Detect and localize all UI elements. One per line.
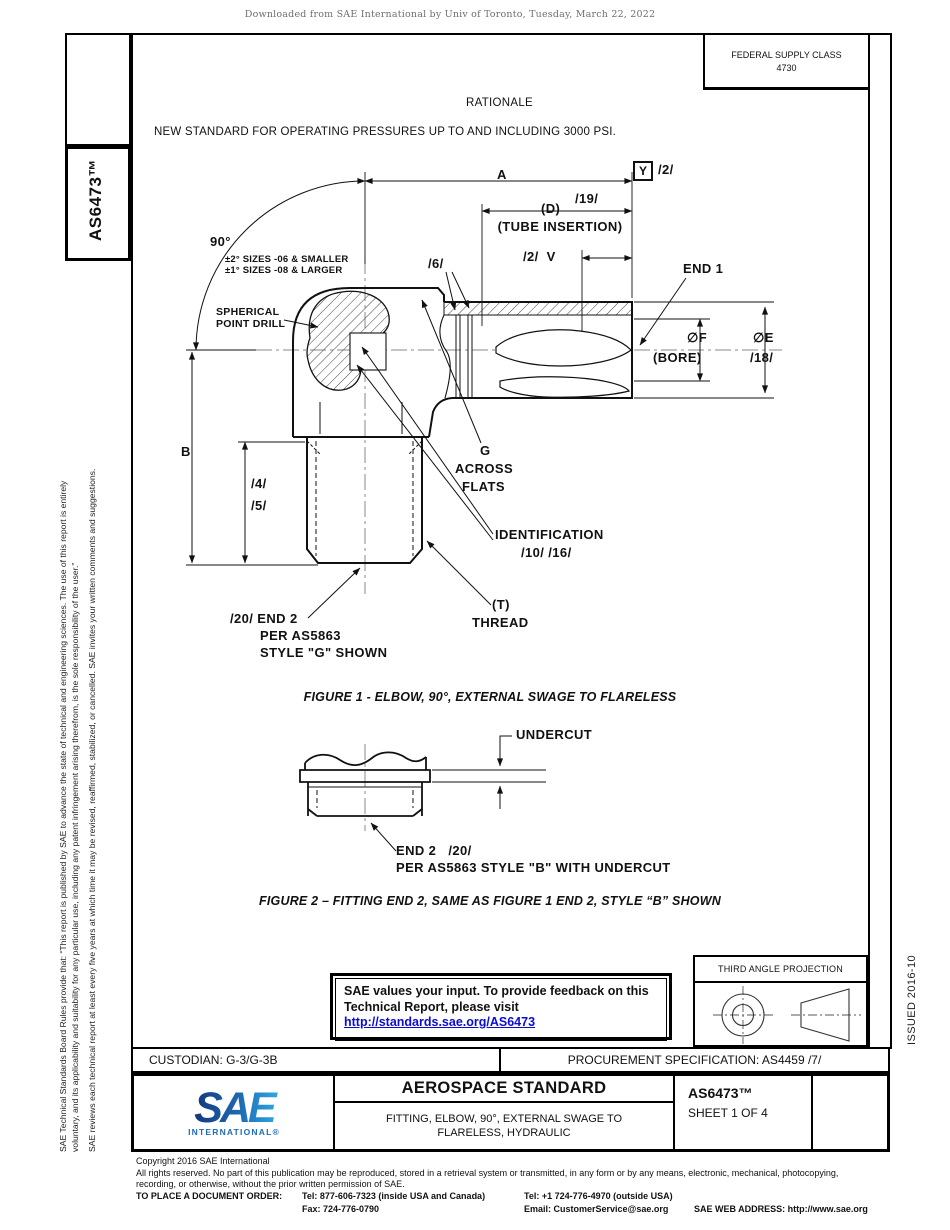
figure2-caption: FIGURE 2 – FITTING END 2, SAME AS FIGURE… [100,894,880,908]
fsc-label: FEDERAL SUPPLY CLASS [705,49,868,62]
undercut-label: UNDERCUT [516,727,592,742]
feedback-line-1: SAE values your input. To provide feedba… [344,984,649,998]
fsc-value: 4730 [705,62,868,75]
note-4-label: /4/ [251,476,267,491]
sae-logo-cell: SAE INTERNATIONAL® [134,1076,335,1149]
legal-line-1: SAE Technical Standards Board Rules prov… [58,481,68,1152]
note-6-label: /6/ [428,256,444,271]
standard-title-line-1: FITTING, ELBOW, 90°, EXTERNAL SWAGE TO [386,1112,622,1126]
note-18-label: /18/ [750,350,773,365]
order-label: TO PLACE A DOCUMENT ORDER: [136,1191,282,1202]
revision-cell-empty [813,1076,887,1149]
bore-label: (BORE) [653,350,702,365]
sae-web-address: SAE WEB ADDRESS: http://www.sae.org [694,1204,868,1215]
standard-title-line-2: FLARELESS, HYDRAULIC [437,1126,570,1140]
angle-tol2-label: ±1° SIZES -08 & LARGER [225,265,342,276]
end2-note-label-3: STYLE "G" SHOWN [260,645,387,660]
sae-logo-text: SAE [194,1085,278,1132]
dim-b-label: B [181,444,191,459]
feedback-line-2: Technical Report, please visit [344,1000,519,1014]
g-label: G [480,443,491,458]
end2-note-label-1: /20/ END 2 [230,611,298,626]
across-label: ACROSS [455,461,513,476]
third-angle-projection-box: THIRD ANGLE PROJECTION [693,955,868,1047]
order-tel-international: Tel: +1 724-776-4970 (outside USA) [524,1191,673,1202]
legal-line-3: SAE reviews each technical report at lea… [87,272,99,1152]
dim-v-label: /2/ V [523,249,556,264]
tube-insertion-label: (TUBE INSERTION) [440,219,680,234]
copyright-line-1: Copyright 2016 SAE International [136,1156,270,1167]
issued-date-vertical: ISSUED 2016-10 [906,880,918,1045]
third-angle-projection-title: THIRD ANGLE PROJECTION [695,957,866,983]
sae-logo: SAE INTERNATIONAL® [168,1085,300,1141]
download-watermark: Downloaded from SAE International by Uni… [0,9,900,20]
spherical-label-1: SPHERICAL [216,306,279,318]
copyright-line-3: recording, or otherwise, without the pri… [136,1179,405,1190]
sae-logo-subtext: INTERNATIONAL® [188,1127,280,1137]
order-tel-domestic: Tel: 877-606-7323 (inside USA and Canada… [302,1191,485,1202]
custodian-row: CUSTODIAN: G-3/G-3B PROCUREMENT SPECIFIC… [131,1047,890,1073]
rationale-heading: RATIONALE [131,97,868,109]
custodian-cell: CUSTODIAN: G-3/G-3B [133,1049,501,1071]
figure1-caption: FIGURE 1 - ELBOW, 90°, EXTERNAL SWAGE TO… [100,690,880,704]
third-angle-projection-icon [695,983,866,1047]
rationale-text: NEW STANDARD FOR OPERATING PRESSURES UP … [154,126,616,138]
copyright-line-2: All rights reserved. No part of this pub… [136,1168,838,1179]
end1-label: END 1 [683,261,723,276]
dim-a-label: A [497,167,507,182]
end2-note-label-2: PER AS5863 [260,628,341,643]
feedback-link[interactable]: http://standards.sae.org/AS6473 [344,1015,535,1029]
doc-number-vertical: AS6473™ [86,148,106,252]
datum-y-box: Y [633,161,653,181]
thread-label: THREAD [472,615,529,630]
angle-tol1-label: ±2° SIZES -06 & SMALLER [225,254,348,265]
fig2-end2-note-label: PER AS5863 STYLE "B" WITH UNDERCUT [396,860,671,875]
note-5-label: /5/ [251,498,267,513]
angle-90-label: 90° [210,234,231,249]
order-fax: Fax: 724-776-0790 [302,1204,379,1215]
dia-e-label: ∅E [753,330,774,346]
fig2-end2-label: END 2 /20/ [396,843,472,858]
dim-d-label: (D) [541,201,560,216]
feedback-box: SAE values your input. To provide feedba… [330,973,672,1040]
thread-t-label: (T) [492,597,510,612]
document-page: Downloaded from SAE International by Uni… [0,0,950,1230]
order-email: Email: CustomerService@sae.org [524,1204,668,1215]
id-notes-label: /10/ /16/ [521,545,572,560]
note-19-label: /19/ [575,191,598,206]
standard-type: AEROSPACE STANDARD [335,1076,673,1103]
title-block: SAE INTERNATIONAL® AEROSPACE STANDARD FI… [131,1073,890,1152]
standard-title-cell: AEROSPACE STANDARD FITTING, ELBOW, 90°, … [335,1076,675,1149]
standard-title: FITTING, ELBOW, 90°, EXTERNAL SWAGE TO F… [335,1103,673,1149]
spherical-label-2: POINT DRILL [216,318,285,330]
identification-label: IDENTIFICATION [495,527,604,542]
legal-notice-vertical: SAE Technical Standards Board Rules prov… [58,272,99,1152]
dia-f-label: ∅F [687,330,707,346]
federal-supply-class-box: FEDERAL SUPPLY CLASS 4730 [703,33,868,90]
procurement-cell: PROCUREMENT SPECIFICATION: AS4459 /7/ [501,1049,888,1071]
legal-line-2: voluntary, and its applicability and sui… [70,563,80,1152]
feedback-box-inner: SAE values your input. To provide feedba… [335,978,667,1041]
top-left-cell [65,33,131,146]
doc-number-cell: AS6473™ SHEET 1 OF 4 [675,1076,813,1149]
datum-note-label: /2/ [658,162,674,177]
doc-number: AS6473™ [688,1085,811,1101]
flats-label: FLATS [462,479,505,494]
sheet-number: SHEET 1 OF 4 [688,1106,811,1120]
